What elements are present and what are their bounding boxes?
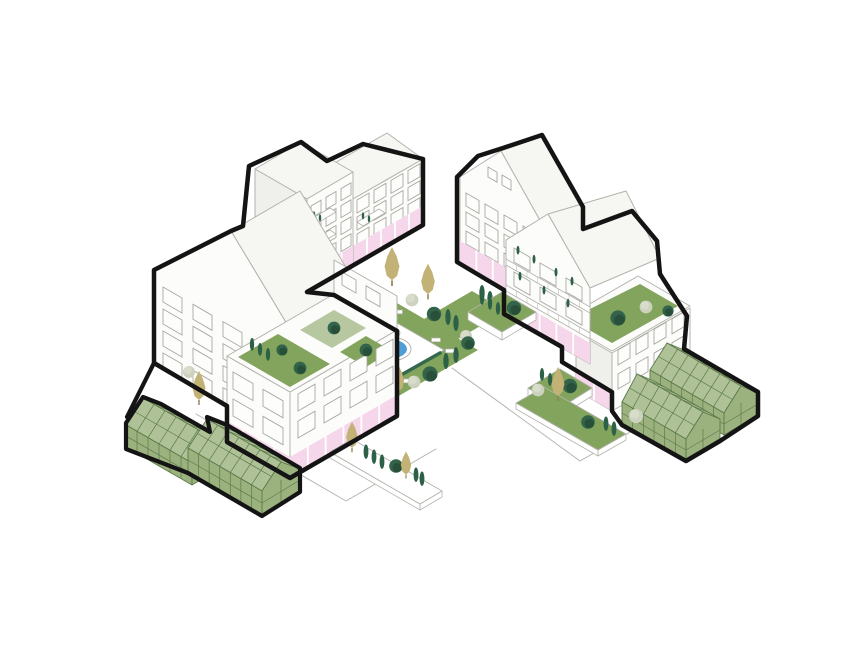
balcony-cypress xyxy=(517,246,520,255)
balcony-cypress xyxy=(519,272,522,281)
street-cypress xyxy=(380,455,385,469)
tree-sage xyxy=(629,409,643,423)
tree-round xyxy=(427,307,441,321)
street-tree xyxy=(532,384,545,397)
planter-tree xyxy=(563,379,577,393)
tree-sage xyxy=(183,366,195,378)
balcony-cypress xyxy=(567,299,570,308)
terrace-tree xyxy=(276,344,287,355)
axonometric-site-illustration xyxy=(0,0,860,645)
terrace-tree xyxy=(640,301,653,314)
terrace-cypress xyxy=(266,348,270,361)
sidewalk-planter-top xyxy=(330,439,442,504)
planter-cypress xyxy=(496,302,500,315)
planter-cypress xyxy=(540,368,544,381)
tree-tan xyxy=(421,264,435,300)
street-cypress xyxy=(604,417,609,431)
street-tree xyxy=(389,459,403,473)
planter-cypress xyxy=(488,297,492,310)
street-tree xyxy=(581,415,595,429)
balcony-plant xyxy=(368,215,370,222)
terrace-tree xyxy=(610,310,625,325)
street-cypress xyxy=(414,468,419,482)
terrace-cypress xyxy=(258,343,262,356)
terrace-tree xyxy=(662,305,673,316)
bench xyxy=(432,338,441,342)
planter-cypress xyxy=(548,373,552,386)
terrace-cypress xyxy=(250,338,254,351)
street-cypress xyxy=(612,422,617,436)
tree-cypress xyxy=(453,315,458,331)
balcony-cypress xyxy=(543,286,546,295)
tree-tan xyxy=(385,247,400,286)
bench xyxy=(446,349,455,353)
terrace-tree xyxy=(360,344,373,357)
terrace-tree xyxy=(328,322,341,335)
street-cypress xyxy=(364,445,369,459)
planter-cypress xyxy=(480,292,484,305)
balcony-cypress xyxy=(533,255,536,264)
tree-round xyxy=(461,336,475,350)
planter-tree xyxy=(507,301,521,315)
tree-cypress xyxy=(443,353,448,369)
scene-canvas xyxy=(0,0,860,645)
tree-sage xyxy=(406,294,419,307)
tree-cypress xyxy=(453,347,458,363)
terrace-tree xyxy=(294,362,307,375)
street-cypress xyxy=(420,472,425,486)
tree-round xyxy=(422,366,437,381)
street-cypress xyxy=(372,450,377,464)
balcony-plant xyxy=(319,214,321,221)
balcony-cypress xyxy=(555,268,558,277)
balcony-plant xyxy=(362,212,364,219)
tree-sage xyxy=(408,376,421,389)
balcony-cypress xyxy=(571,277,574,286)
tree-cypress xyxy=(445,309,450,325)
